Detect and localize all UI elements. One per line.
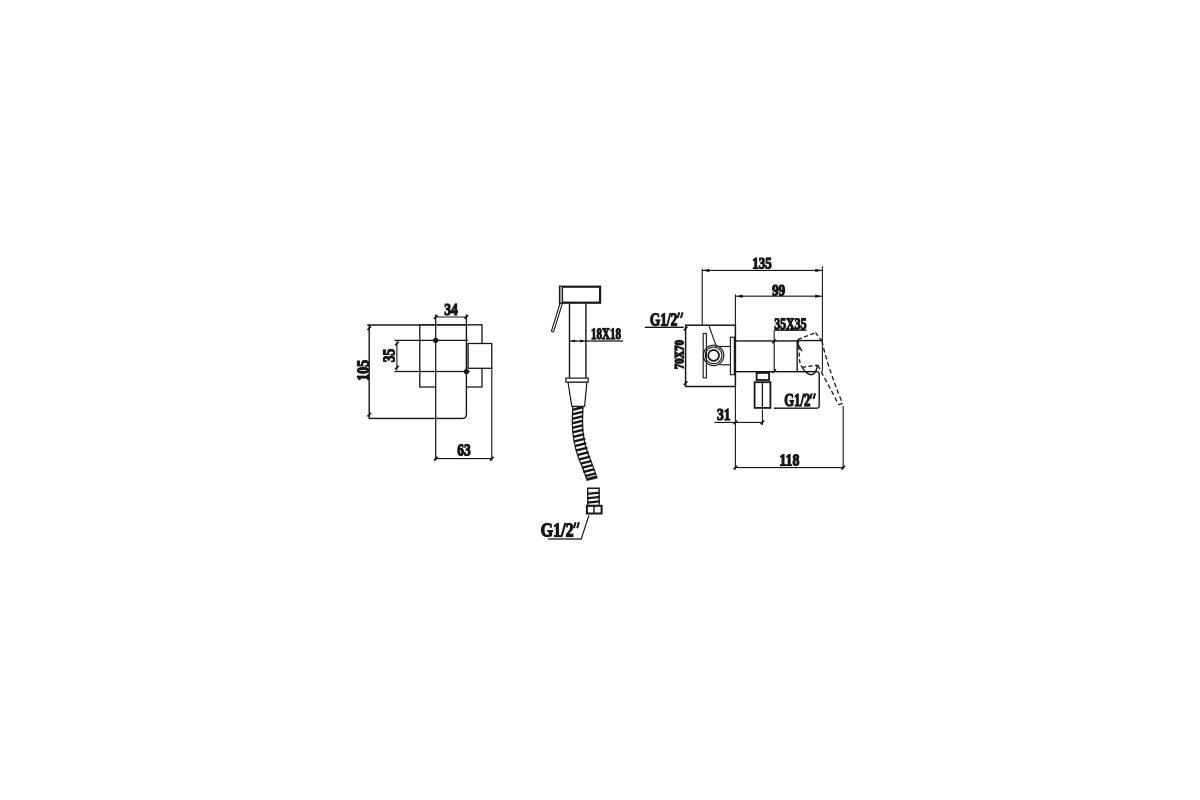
svg-text:70X70: 70X70 bbox=[672, 340, 686, 369]
svg-text:99: 99 bbox=[772, 282, 785, 299]
svg-text:31: 31 bbox=[717, 405, 731, 424]
svg-text:118: 118 bbox=[779, 451, 799, 470]
svg-text:G1/2: G1/2 bbox=[541, 520, 574, 541]
svg-text:34: 34 bbox=[444, 300, 458, 319]
svg-text:105: 105 bbox=[353, 360, 372, 381]
svg-text:135: 135 bbox=[752, 256, 772, 273]
svg-text:18X18: 18X18 bbox=[591, 326, 621, 343]
svg-text:G1/2: G1/2 bbox=[784, 390, 810, 410]
svg-text:G1/2: G1/2 bbox=[650, 309, 678, 329]
svg-text:63: 63 bbox=[457, 440, 471, 459]
svg-text:35: 35 bbox=[380, 349, 399, 363]
